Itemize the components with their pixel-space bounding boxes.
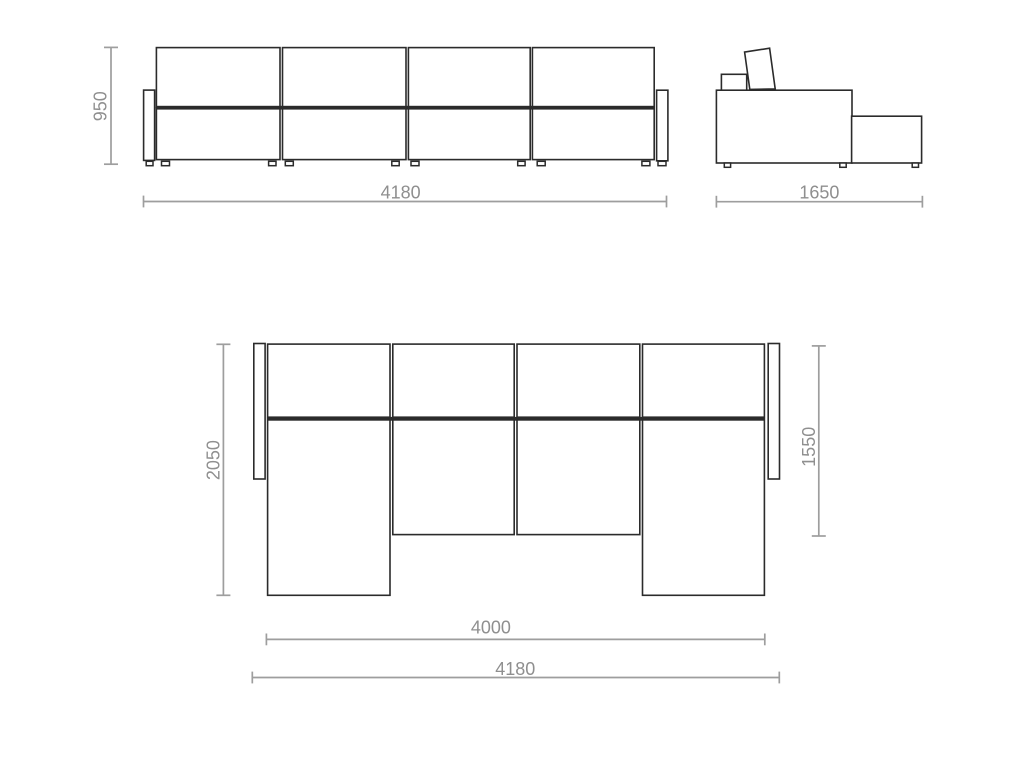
svg-text:1650: 1650 — [799, 182, 839, 202]
svg-text:4180: 4180 — [381, 182, 421, 202]
svg-text:4180: 4180 — [495, 659, 535, 679]
svg-text:2050: 2050 — [204, 440, 224, 480]
svg-text:1550: 1550 — [799, 427, 819, 467]
svg-text:950: 950 — [91, 91, 111, 121]
svg-text:4000: 4000 — [471, 617, 511, 637]
